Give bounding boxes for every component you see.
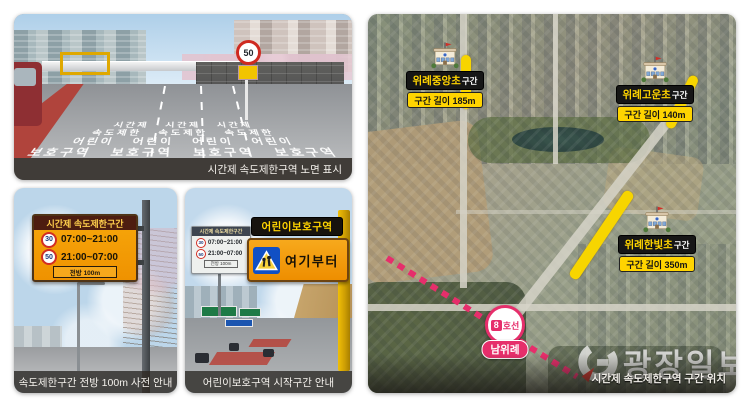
car [195,353,209,363]
small-sign-row: 30 07:00~21:00 [192,236,250,248]
school-name: 위례한빛초 [625,237,673,252]
sign-row: 30 07:00~21:00 [34,230,136,248]
subway-station-namwirye: 8 호선 남위례 [485,305,525,361]
time-based-speed-limit-sign: 시간제 속도제한구간 30 07:00~21:00 50 21:00~07:00… [32,214,138,282]
time-range: 21:00~07:00 [61,252,118,263]
photo-pavement-marking: 시간제 시간제 시간제 속도제한 속도제한 속도제한 어린이 어린이 어린이 어… [14,14,352,180]
street-lamp-pole [77,284,80,371]
road-north-south [553,14,558,164]
time-range: 21:00~07:00 [208,251,242,257]
green-road-sign [239,308,261,317]
school-name: 위례고운초 [623,87,671,102]
zone-label-wirye-hanbit: 위례한빛초구간 구간 길이 350m [602,206,712,272]
zone-name-badge: 위례고운초구간 [616,85,695,104]
map-caption: 시간제 속도제한구역 구간 위치 [592,371,726,386]
photo-advance-sign: 시간제 속도제한구간 30 07:00~21:00 50 21:00~07:00… [14,188,177,393]
small-sign-row: 50 21:00~07:00 [192,248,250,260]
sign-row: 50 21:00~07:00 [34,248,136,266]
pavement-line: 보호구역 보호구역 보호구역 보호구역 [14,147,352,159]
sign-title: 시간제 속도제한구간 [34,216,136,230]
map-caption-bar: 시간제 속도제한구역 구간 위치 [368,354,736,393]
zone-label-wirye-goun: 위례고운초구간 구간 길이 140m [600,56,710,122]
pavement-marking-text: 시간제 시간제 시간제 속도제한 속도제한 속도제한 어린이 어린이 어린이 어… [14,121,352,158]
school-icon [430,42,460,70]
sign-pole [245,78,248,120]
time-range: 07:00~21:00 [61,234,118,245]
speed-50-badge: 50 [196,249,206,259]
speed-limit-50-sign: 50 [236,40,261,65]
line-8-badge: 8 [491,320,502,331]
zone-label-wirye-jungang: 위례중앙초구간 구간 길이 185m [390,42,500,108]
sign-footer-distance: 전방 100m [53,266,117,278]
photo-caption: 어린이보호구역 시작구간 안내 [185,371,352,393]
schoolzone-start-sign: 여기부터 [247,238,349,282]
yellow-gantry [60,52,110,75]
school-icon [642,206,672,234]
from-here-label: 여기부터 [285,251,339,270]
line-suffix: 호선 [503,319,520,332]
photo-schoolzone-sign: 시간제 속도제한구간 30 07:00~21:00 50 21:00~07:00… [185,188,352,393]
small-sign-footer: 전방 100m [204,260,238,268]
bus-window [14,68,36,86]
station-circle-badge: 8 호선 [485,305,525,345]
schoolzone-title-sign: 어린이보호구역 [251,217,343,236]
satellite-map: 위례중앙초구간 구간 길이 185m 위례고운초구간 구간 길이 140m [368,14,736,393]
zone-length-badge: 구간 길이 185m [407,92,482,108]
small-speed-limit-sign: 시간제 속도제한구간 30 07:00~21:00 50 21:00~07:00… [191,226,251,274]
children-crossing-icon [253,247,280,274]
zone-suffix: 구간 [462,75,478,87]
zone-length-badge: 구간 길이 140m [617,106,692,122]
car [263,349,274,357]
yellow-sign-plate [238,65,258,80]
time-range: 07:00~21:00 [208,240,242,246]
zone-length-badge: 구간 길이 350m [619,256,694,272]
blue-road-sign [225,319,253,327]
school-name: 위례중앙초 [413,73,461,88]
zone-suffix: 구간 [674,239,690,251]
bus [14,62,42,126]
pavement-line: 속도제한 속도제한 속도제한 [31,129,335,137]
road-east-west [368,304,736,311]
speed-30-badge: 30 [196,238,206,248]
red-bus-lane [249,339,292,347]
school-icon [640,56,670,84]
car [229,343,239,351]
speed-30-badge: 30 [41,232,57,248]
photo-caption: 시간제 속도제한구역 노면 표시 [14,158,352,180]
photo-caption: 속도제한구간 전방 100m 사전 안내 [14,371,177,393]
zone-name-badge: 위례한빛초구간 [618,235,697,254]
speed-50-badge: 50 [41,249,57,265]
small-sign-pole [218,272,221,316]
road-surface [14,347,177,371]
zone-suffix: 구간 [672,89,688,101]
pavement-line: 시간제 시간제 시간제 [37,121,328,128]
small-sign-title: 시간제 속도제한구간 [192,227,250,236]
zone-name-badge: 위례중앙초구간 [406,71,485,90]
pavement-line: 어린이 어린이 어린이 어린이 [23,137,343,147]
street-lamp-arm [77,282,105,285]
